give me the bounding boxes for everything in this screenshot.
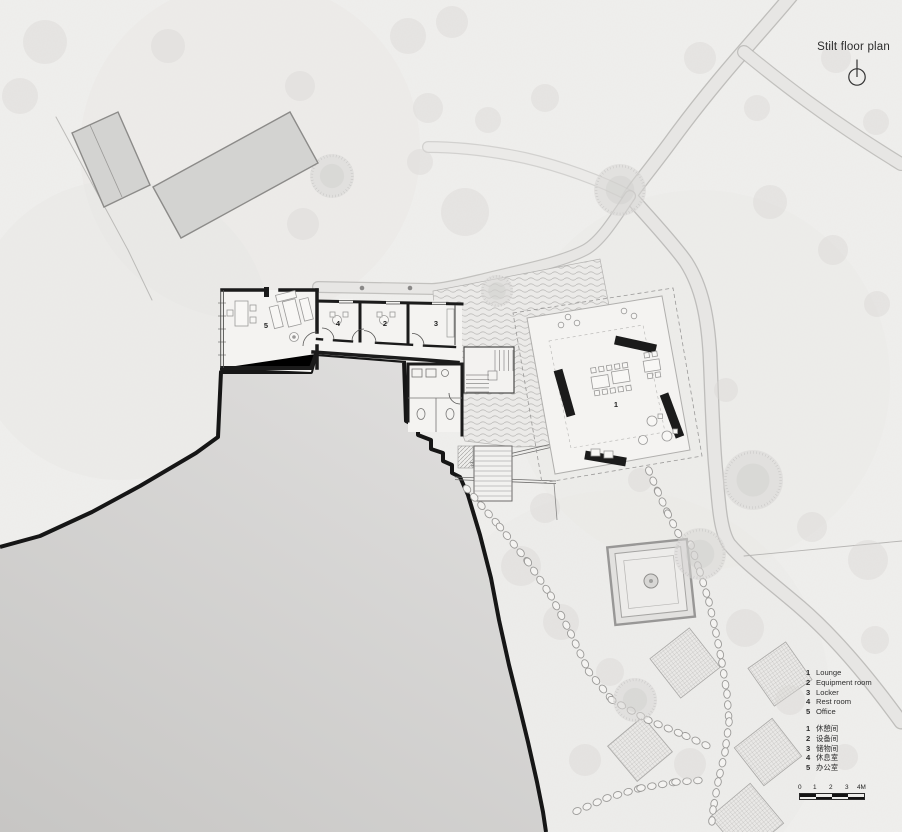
tree-shade (606, 176, 635, 205)
tree-shade (686, 540, 715, 569)
tree (441, 188, 489, 236)
legend-item: 1Lounge (806, 668, 872, 678)
legend: 1Lounge 2Equipment room 3Locker 4Rest ro… (806, 668, 872, 773)
column-dot (408, 286, 413, 291)
scale-tick: 0 (798, 784, 802, 791)
legend-item: 5办公室 (806, 763, 872, 773)
scale-tick: 3 (845, 784, 849, 791)
stepping-stone (708, 816, 715, 825)
tree (151, 29, 185, 63)
north-arrow-icon (845, 58, 869, 88)
stepping-stone (709, 805, 716, 814)
tree (818, 235, 848, 265)
legend-chinese: 1休憩间 2设备间 3储物间 4休息室 5办公室 (806, 724, 872, 773)
tree (674, 748, 706, 780)
legend-num: 3 (806, 688, 816, 698)
legend-num: 2 (806, 678, 816, 688)
tree (775, 685, 805, 715)
stepping-stone (671, 778, 680, 785)
legend-label: Rest room (816, 697, 851, 707)
legend-english: 1Lounge 2Equipment room 3Locker 4Rest ro… (806, 668, 872, 717)
tree (2, 78, 38, 114)
legend-item: 3储物间 (806, 744, 872, 754)
tree (413, 93, 443, 123)
column-dot (360, 286, 365, 291)
legend-item: 4休息室 (806, 753, 872, 763)
room-label-equipment: 2 (383, 319, 387, 328)
legend-num: 2 (806, 734, 816, 744)
room-label-locker: 3 (434, 319, 438, 328)
room-label-office: 5 (264, 321, 268, 330)
legend-num: 5 (806, 707, 816, 717)
tree (726, 609, 764, 647)
tree-shade (488, 282, 506, 300)
tree (864, 291, 890, 317)
scale-bar: 0 1 2 3 4M (798, 784, 868, 802)
legend-label: 休息室 (816, 753, 838, 763)
scale-tick: 1 (813, 784, 817, 791)
ramp-hatch (458, 446, 473, 468)
legend-item: 5Office (806, 707, 872, 717)
stepping-stone (724, 700, 731, 709)
stepping-stone (723, 689, 730, 698)
tree (285, 71, 315, 101)
legend-num: 1 (806, 668, 816, 678)
tree (475, 107, 501, 133)
tree (753, 185, 787, 219)
tree (848, 540, 888, 580)
tree-shade (320, 164, 344, 188)
site-plan-drawing: 1 2 3 4 5 (0, 0, 902, 832)
floor-plan-sheet: 1 2 3 4 5 Stilt floor plan 1Lounge 2Equi… (0, 0, 902, 832)
legend-num: 3 (806, 744, 816, 754)
scale-tick: 2 (829, 784, 833, 791)
tree (390, 18, 426, 54)
legend-num: 4 (806, 753, 816, 763)
legend-item: 1休憩间 (806, 724, 872, 734)
tree (407, 149, 433, 175)
tree (714, 378, 738, 402)
tree (861, 626, 889, 654)
legend-label: 办公室 (816, 763, 838, 773)
page-title: Stilt floor plan (760, 41, 890, 53)
stair-block (464, 347, 514, 393)
room-label-lounge: 1 (614, 400, 618, 409)
legend-num: 1 (806, 724, 816, 734)
legend-label: 储物间 (816, 744, 838, 754)
legend-num: 5 (806, 763, 816, 773)
legend-item: 4Rest room (806, 697, 872, 707)
legend-item: 3Locker (806, 688, 872, 698)
tree (863, 109, 889, 135)
hillside-stair (474, 446, 512, 501)
tree (569, 744, 601, 776)
tree (684, 42, 716, 74)
tree (744, 95, 770, 121)
tree-shade (623, 688, 647, 712)
tree-shade (737, 464, 770, 497)
tree (287, 208, 319, 240)
tree (797, 512, 827, 542)
tree (436, 6, 468, 38)
tree (23, 20, 67, 64)
scale-bar-graphic (799, 793, 865, 800)
legend-label: Office (816, 707, 836, 717)
legend-item: 2Equipment room (806, 678, 872, 688)
legend-label: Equipment room (816, 678, 872, 688)
tree (531, 84, 559, 112)
tree (596, 658, 624, 686)
legend-label: 设备间 (816, 734, 838, 744)
legend-item: 2设备间 (806, 734, 872, 744)
legend-label: 休憩间 (816, 724, 838, 734)
scale-tick: 4M (857, 784, 866, 791)
legend-label: Locker (816, 688, 839, 698)
legend-num: 4 (806, 697, 816, 707)
legend-label: Lounge (816, 668, 841, 678)
